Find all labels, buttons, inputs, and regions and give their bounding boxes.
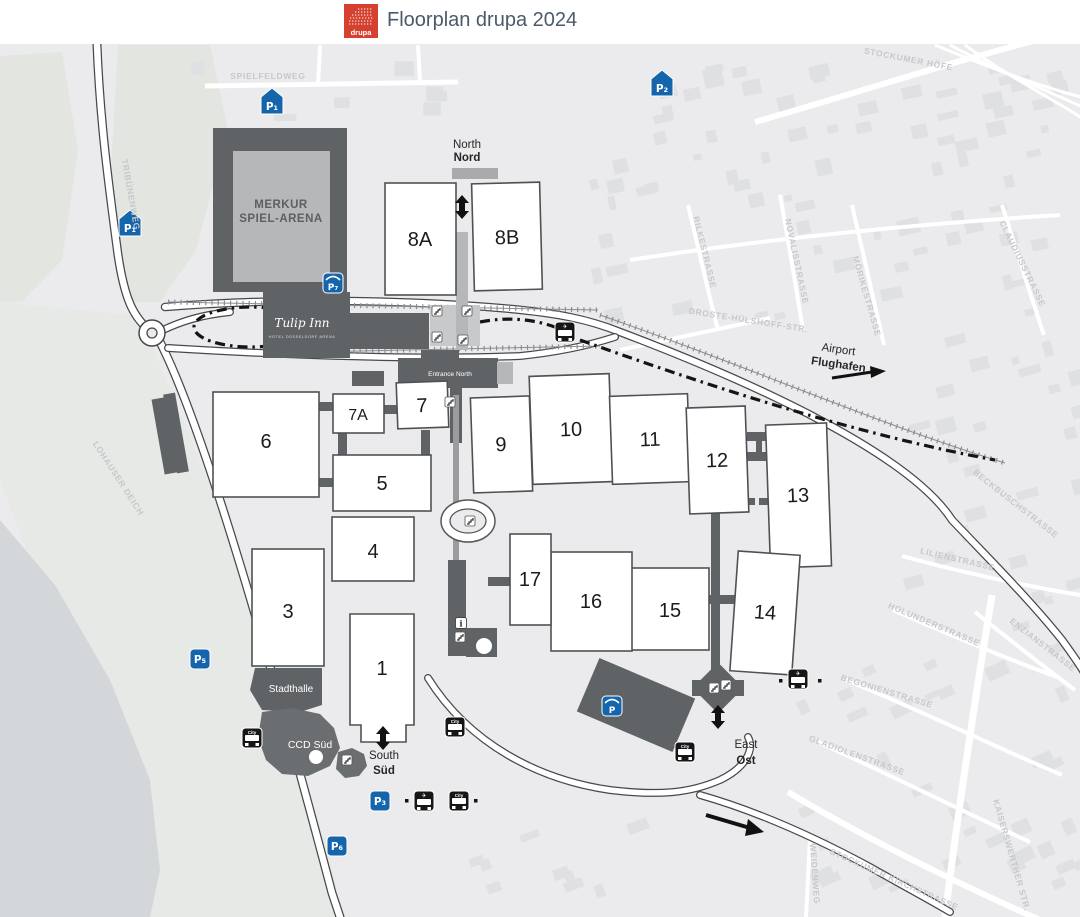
drupa-logo: drupa — [344, 4, 378, 38]
city-bus-icon — [675, 742, 695, 762]
hall-4: 4 — [332, 517, 414, 581]
arena-label-1: MERKUR — [254, 199, 308, 211]
hall-10: 10 — [529, 374, 613, 485]
arena-label-2: SPIEL-ARENA — [239, 213, 322, 225]
city-bus-icon — [445, 717, 465, 737]
parking-p6: P₆ — [327, 836, 347, 856]
entrance-north-en: North — [453, 139, 481, 151]
stairs-icon — [432, 306, 442, 316]
entrance-east-de: Ost — [736, 755, 755, 767]
svg-text:P: P — [609, 706, 616, 716]
hall-16: 16 — [551, 552, 632, 651]
drupa-logo-text: drupa — [351, 28, 373, 37]
hotel-name: Tulip Inn — [274, 316, 329, 330]
street-label: SPIELFELDWEG — [230, 71, 305, 81]
stadthalle-label: Stadthalle — [269, 684, 314, 695]
stairs-icon — [342, 755, 352, 765]
hall-15-label: 15 — [659, 600, 681, 622]
stairs-icon — [709, 683, 719, 693]
hall-17-label: 17 — [519, 569, 541, 591]
hall-7-label: 7 — [416, 395, 428, 417]
city-bus-icon — [449, 791, 469, 811]
hall-13: 13 — [766, 423, 832, 568]
hotel-subtitle: HOTEL DÜSSELDORF ARENA — [269, 335, 336, 339]
city-bus-icon — [242, 728, 262, 748]
page-title: Floorplan drupa 2024 — [387, 9, 577, 32]
hall-6: 6 — [213, 392, 319, 497]
entrance-south-en: South — [369, 750, 399, 762]
stairs-icon — [721, 680, 731, 690]
svg-text:P₇: P₇ — [328, 283, 339, 293]
stadthalle-building: Stadthalle — [250, 668, 322, 712]
north-entrance-bar — [452, 168, 498, 179]
info-icon — [456, 618, 467, 629]
entrance-east-en: East — [734, 739, 758, 751]
entrance-north-de: Nord — [454, 152, 481, 164]
hall-12-label: 12 — [706, 450, 729, 473]
entrance-south-de: Süd — [373, 765, 395, 777]
hall-8b: 8B — [472, 182, 543, 291]
airport-bus-icon — [555, 322, 575, 342]
floorplan-page: drupa Floorplan drupa 2024 — [0, 0, 1080, 917]
stairs-icon — [455, 632, 465, 642]
hall-9: 9 — [470, 396, 532, 493]
parking-p3-south: P₃ — [370, 791, 390, 811]
airport-bus-icon — [414, 791, 434, 811]
page-header: drupa Floorplan drupa 2024 — [0, 0, 1080, 44]
hall-17: 17 — [510, 534, 551, 625]
hall-14: 14 — [730, 551, 800, 675]
hall-8b-label: 8B — [495, 227, 520, 250]
hall-3: 3 — [252, 549, 324, 666]
parking-p5: P₅ — [190, 649, 210, 669]
airport-bus-icon — [788, 669, 808, 689]
hall-15: 15 — [631, 568, 709, 650]
arena-complex: MERKUR SPIEL-ARENA — [213, 128, 347, 292]
stairs-icon — [458, 335, 468, 345]
hall-1: 1 — [350, 614, 414, 742]
hall-3-label: 3 — [282, 601, 293, 623]
floorplan-map: MERKUR SPIEL-ARENA Tulip Inn HOTEL DÜSSE… — [0, 44, 1080, 917]
svg-text:P₃: P₃ — [374, 796, 387, 808]
hall-8a: 8A — [385, 183, 456, 295]
parking-p7-arena: P₇ — [323, 273, 343, 293]
svg-text:P₁: P₁ — [266, 101, 279, 113]
hall-5: 5 — [333, 455, 431, 511]
hall-11-label: 11 — [639, 429, 661, 452]
entrance-north-label: Entrance North — [428, 371, 472, 378]
stairs-icon — [432, 332, 442, 342]
hall-7a-label: 7A — [348, 407, 368, 424]
svg-text:P₂: P₂ — [656, 83, 669, 95]
hall-7a: 7A — [333, 394, 384, 433]
svg-text:P₆: P₆ — [331, 841, 344, 853]
hall-7: 7 — [396, 381, 449, 429]
stairs-icon — [465, 516, 475, 526]
stairs-icon — [445, 397, 455, 407]
hall-13-label: 13 — [787, 485, 810, 508]
hall-16-label: 16 — [580, 591, 602, 613]
hall-5-label: 5 — [376, 473, 387, 495]
walkway-8a-8b — [456, 232, 468, 302]
hall-4-label: 4 — [367, 541, 378, 563]
hall-8a-label: 8A — [408, 229, 433, 251]
parking-garage-east: P — [602, 696, 622, 716]
stairs-icon — [462, 306, 472, 316]
hall-9-label: 9 — [495, 434, 507, 456]
hall-6-label: 6 — [260, 431, 271, 453]
hall-10-label: 10 — [560, 419, 583, 442]
svg-text:P₅: P₅ — [194, 654, 207, 666]
ccd-sued-label: CCD Süd — [288, 739, 333, 751]
hall-11: 11 — [609, 394, 690, 485]
hall-12: 12 — [686, 406, 749, 514]
hall-14-label: 14 — [753, 601, 777, 624]
hall-1-label: 1 — [376, 658, 387, 680]
